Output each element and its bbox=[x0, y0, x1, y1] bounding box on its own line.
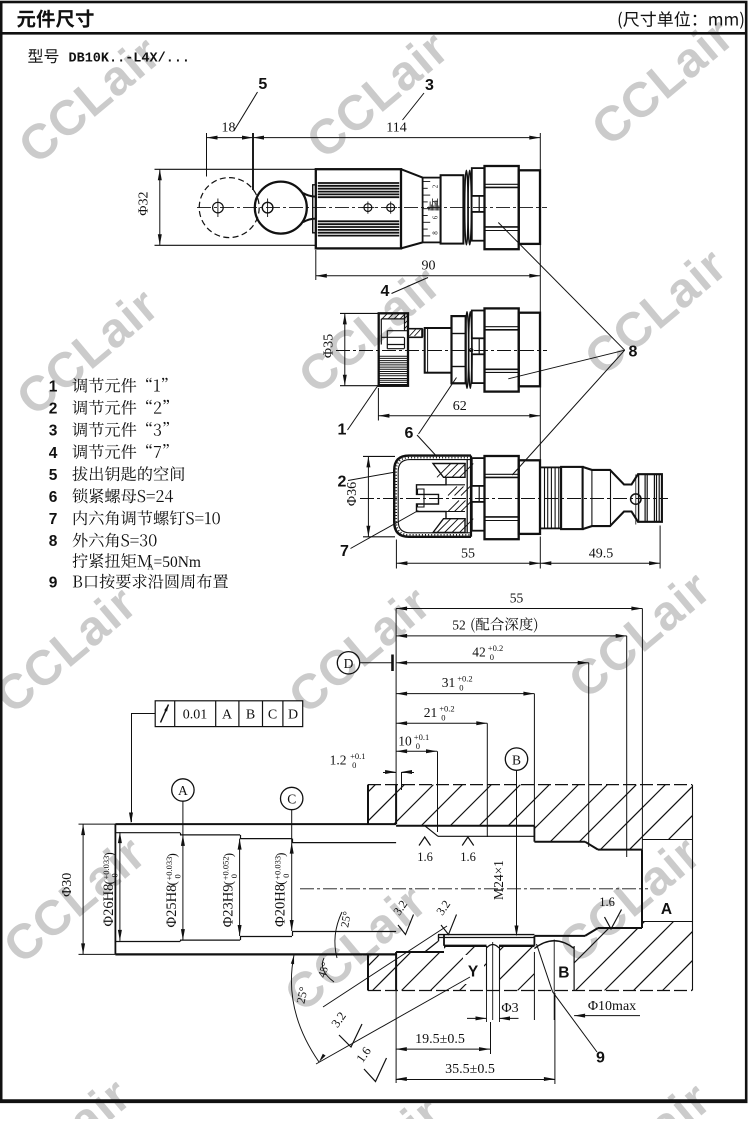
svg-text:1.6: 1.6 bbox=[417, 850, 433, 864]
svg-text:(: ( bbox=[101, 880, 116, 884]
svg-text:0.01: 0.01 bbox=[183, 708, 208, 723]
svg-text:0: 0 bbox=[490, 652, 494, 662]
svg-text:49.5: 49.5 bbox=[589, 547, 614, 562]
svg-text:0: 0 bbox=[459, 683, 463, 693]
svg-text:35.5±0.5: 35.5±0.5 bbox=[445, 1062, 495, 1077]
svg-text:0: 0 bbox=[229, 874, 239, 878]
svg-text:6: 6 bbox=[49, 489, 58, 506]
svg-text:8: 8 bbox=[49, 533, 58, 550]
svg-text:5: 5 bbox=[49, 467, 58, 484]
svg-text:DB10K..-L4X/...: DB10K..-L4X/... bbox=[69, 52, 191, 67]
svg-text:9: 9 bbox=[596, 1050, 605, 1067]
svg-text:6: 6 bbox=[405, 425, 414, 442]
svg-text:55: 55 bbox=[510, 591, 524, 606]
svg-text:5: 5 bbox=[258, 76, 267, 93]
svg-text:0: 0 bbox=[281, 874, 291, 878]
svg-text:C: C bbox=[287, 792, 296, 807]
svg-text:B: B bbox=[558, 965, 569, 982]
svg-text:8: 8 bbox=[432, 231, 440, 235]
svg-text:C: C bbox=[268, 708, 277, 723]
svg-text:52: 52 bbox=[452, 618, 466, 633]
svg-text:7: 7 bbox=[49, 511, 58, 528]
svg-text:9: 9 bbox=[49, 574, 58, 591]
svg-text:1: 1 bbox=[338, 422, 347, 439]
svg-text:10: 10 bbox=[398, 734, 412, 749]
svg-text:A: A bbox=[661, 901, 672, 918]
svg-text:4: 4 bbox=[432, 200, 440, 204]
svg-text:31: 31 bbox=[442, 675, 456, 690]
svg-text:(: ( bbox=[164, 881, 179, 885]
svg-text:Φ35: Φ35 bbox=[322, 334, 337, 358]
svg-text:4: 4 bbox=[381, 283, 390, 300]
svg-text:42: 42 bbox=[472, 645, 486, 660]
svg-text:Φ30: Φ30 bbox=[60, 873, 75, 897]
svg-text:4: 4 bbox=[49, 445, 58, 462]
svg-text:0: 0 bbox=[110, 873, 120, 877]
svg-text:2: 2 bbox=[338, 474, 347, 491]
svg-text:1.6: 1.6 bbox=[599, 895, 615, 909]
svg-text:0: 0 bbox=[173, 874, 183, 878]
svg-text:Φ26H8: Φ26H8 bbox=[101, 884, 117, 927]
svg-text:19.5±0.5: 19.5±0.5 bbox=[415, 1032, 465, 1047]
svg-text:2: 2 bbox=[432, 184, 440, 188]
svg-text:7: 7 bbox=[340, 543, 349, 560]
svg-text:(: ( bbox=[273, 880, 288, 884]
svg-text:Y: Y bbox=[468, 964, 479, 981]
svg-text:B: B bbox=[246, 708, 255, 723]
svg-text:(: ( bbox=[221, 881, 236, 885]
svg-text:3: 3 bbox=[425, 77, 434, 94]
svg-text:3: 3 bbox=[49, 423, 58, 440]
svg-text:1.2: 1.2 bbox=[330, 753, 347, 768]
svg-text:114: 114 bbox=[386, 121, 406, 136]
svg-text:): ) bbox=[221, 853, 236, 857]
svg-text:55: 55 bbox=[461, 547, 475, 562]
svg-text:1.6: 1.6 bbox=[460, 850, 476, 864]
svg-text:0: 0 bbox=[352, 760, 356, 770]
svg-text:18: 18 bbox=[222, 121, 236, 136]
svg-text:8: 8 bbox=[629, 344, 638, 361]
svg-text:1: 1 bbox=[49, 379, 58, 396]
svg-text:Φ32: Φ32 bbox=[137, 191, 152, 215]
svg-text:=50Nm: =50Nm bbox=[154, 554, 202, 571]
svg-text:90: 90 bbox=[422, 259, 436, 274]
svg-text:B: B bbox=[512, 752, 521, 767]
svg-text:D: D bbox=[344, 656, 354, 671]
svg-text:Φ10max: Φ10max bbox=[588, 999, 636, 1014]
svg-text:Φ3: Φ3 bbox=[501, 1001, 518, 1016]
svg-text:): ) bbox=[273, 852, 288, 856]
svg-text:Φ23H9: Φ23H9 bbox=[221, 884, 237, 927]
svg-text:): ) bbox=[164, 853, 179, 857]
svg-text:M24×1: M24×1 bbox=[491, 860, 506, 900]
svg-text:A: A bbox=[222, 708, 233, 723]
svg-text:0: 0 bbox=[416, 741, 420, 751]
svg-text:): ) bbox=[101, 852, 116, 856]
svg-text:Φ25H8: Φ25H8 bbox=[164, 885, 180, 928]
svg-text:Φ36: Φ36 bbox=[345, 482, 360, 506]
svg-text:Φ20H8: Φ20H8 bbox=[273, 884, 289, 927]
svg-text:21: 21 bbox=[424, 705, 438, 720]
svg-text:A: A bbox=[178, 783, 188, 798]
svg-text:6: 6 bbox=[432, 215, 440, 219]
svg-text:D: D bbox=[288, 708, 298, 723]
svg-text:62: 62 bbox=[453, 399, 467, 414]
svg-text:2: 2 bbox=[49, 401, 58, 418]
svg-text:0: 0 bbox=[441, 713, 445, 723]
